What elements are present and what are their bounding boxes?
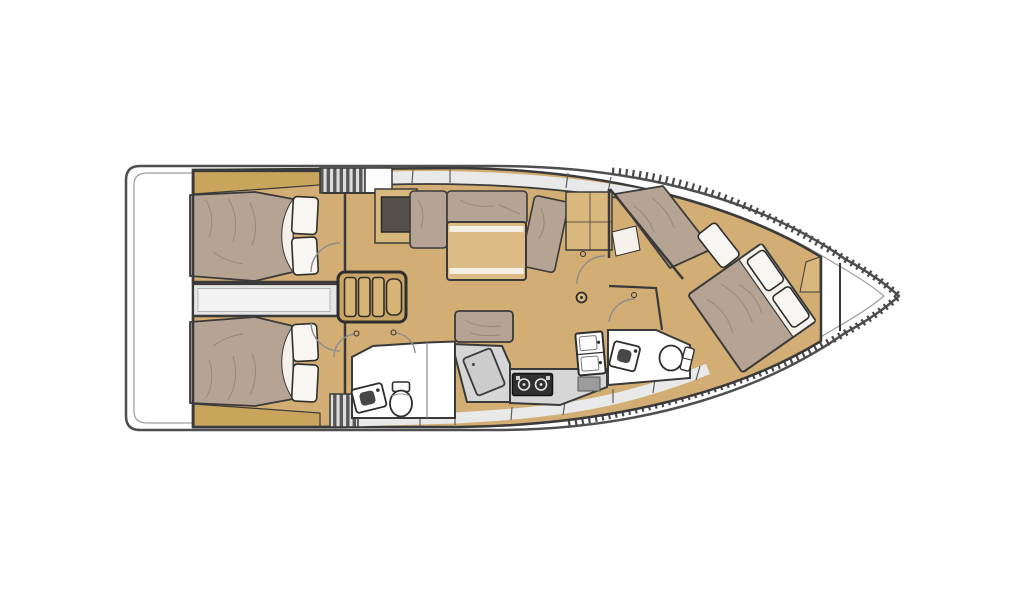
dining-table xyxy=(447,222,526,280)
aft-head xyxy=(351,342,455,419)
pillow xyxy=(292,196,319,234)
yacht-floor-plan xyxy=(0,0,1024,600)
double-berth-mattress xyxy=(190,192,293,281)
pillow xyxy=(292,364,319,402)
toilet xyxy=(660,346,695,372)
floor-plan-drawing xyxy=(0,0,1024,600)
double-sink xyxy=(575,331,606,375)
sideboard-cabinet xyxy=(566,192,612,250)
pillow xyxy=(292,323,319,361)
engine-compartment-passage xyxy=(193,284,343,316)
table-leaf xyxy=(450,268,524,274)
bench-seat xyxy=(455,311,513,342)
companionway-steps xyxy=(338,272,406,322)
door-handle xyxy=(632,293,637,298)
door-handle xyxy=(354,331,359,336)
pillow-wedge xyxy=(612,226,640,256)
double-berth-mattress xyxy=(190,317,293,406)
settee-cushion-back xyxy=(447,191,527,224)
washbasin xyxy=(609,341,641,372)
cockpit-hatch-grate xyxy=(320,168,365,193)
table-leaf xyxy=(450,226,524,232)
under-counter-locker xyxy=(578,377,600,391)
pillow xyxy=(292,237,319,275)
door-handle xyxy=(391,330,396,335)
door-handle xyxy=(581,252,586,257)
toilet xyxy=(390,382,412,417)
locker-opening xyxy=(382,197,412,232)
settee-cushion-left xyxy=(410,191,447,248)
stove xyxy=(513,374,553,396)
